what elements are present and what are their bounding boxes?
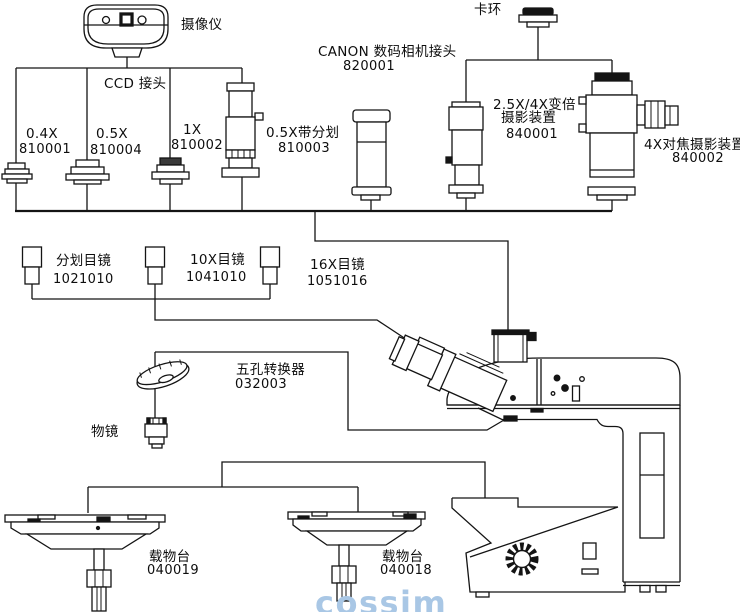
focus-knob-drawing bbox=[510, 547, 535, 572]
eyepiece-10x-drawing bbox=[146, 247, 165, 284]
microscope-drawing bbox=[386, 325, 680, 597]
camera-label: 摄像仪 bbox=[181, 18, 222, 33]
snap-ring-label: 卡环 bbox=[474, 3, 502, 18]
zoom-photo-device-label-line2: 摄影装置 bbox=[501, 111, 556, 126]
adapter-0.5x-drawing bbox=[66, 160, 109, 184]
adapter-0.4x-drawing bbox=[2, 163, 32, 183]
stage-left-drawing bbox=[5, 515, 165, 611]
focus-photo-device-code: 840002 bbox=[672, 152, 724, 167]
trinocular-port-drawing bbox=[492, 330, 536, 362]
adapter-0.5x-reticle-code: 810003 bbox=[278, 142, 330, 157]
zoom-photo-device-code: 840001 bbox=[506, 128, 558, 143]
reticle-eyepiece-label: 分划目镜 bbox=[56, 254, 111, 269]
snap-ring-drawing bbox=[519, 8, 557, 27]
ccd-connector-label: CCD 接头 bbox=[104, 77, 166, 92]
stage-left-code: 040019 bbox=[147, 564, 199, 579]
eyepiece-10x-code: 1041010 bbox=[186, 271, 247, 286]
camera-drawing bbox=[84, 5, 168, 57]
adapter-0.4x-code: 810001 bbox=[19, 143, 71, 158]
reticle-eyepiece-code: 1021010 bbox=[53, 273, 114, 288]
parts-diagram: 摄像仪 CCD 接头 0.4X 810001 0.5X 810004 1X 81… bbox=[0, 0, 740, 612]
nosepiece-label: 五孔转换器 bbox=[236, 363, 305, 378]
eyepiece-16x-code: 1051016 bbox=[307, 275, 368, 290]
eyepiece-10x-label: 10X目镜 bbox=[190, 253, 245, 268]
nosepiece-code: 032003 bbox=[235, 378, 287, 393]
nosepiece-drawing bbox=[133, 355, 192, 394]
stage-right-code: 040018 bbox=[380, 564, 432, 579]
eyepiece-16x-label: 16X目镜 bbox=[310, 258, 365, 273]
zoom-photo-device-drawing bbox=[446, 102, 483, 198]
adapter-0.5x-code: 810004 bbox=[90, 144, 142, 159]
eyepiece-16x-drawing bbox=[261, 247, 280, 284]
adapter-0.5x-reticle-label: 0.5X带分划 bbox=[266, 126, 339, 141]
adapter-1x-drawing bbox=[152, 158, 189, 184]
canon-adapter-drawing bbox=[352, 110, 391, 200]
objective-label: 物镜 bbox=[91, 425, 119, 440]
cossim-watermark: cossim bbox=[315, 584, 447, 612]
adapter-1x-code: 810002 bbox=[171, 139, 223, 154]
adapter-1x-label: 1X bbox=[183, 123, 201, 138]
reticle-eyepiece-drawing bbox=[23, 247, 42, 284]
adapter-0.4x-label: 0.4X bbox=[26, 127, 58, 142]
canon-adapter-code: 820001 bbox=[343, 60, 395, 75]
adapter-0.5x-reticle-drawing bbox=[222, 83, 263, 177]
adapter-0.5x-label: 0.5X bbox=[96, 127, 128, 142]
canon-adapter-label: CANON 数码相机接头 bbox=[318, 45, 456, 60]
objective-drawing bbox=[145, 418, 167, 448]
